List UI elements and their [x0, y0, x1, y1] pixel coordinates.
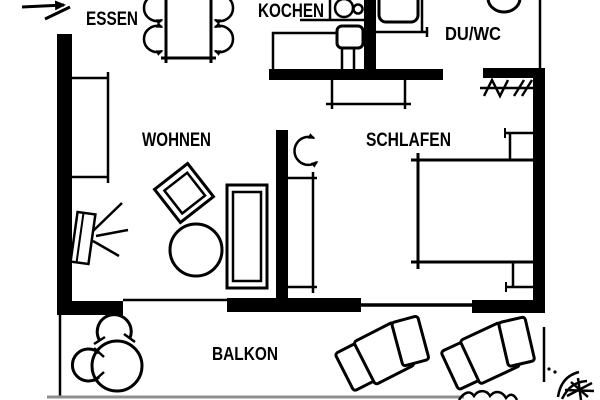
floor-plan: ESSEN KOCHEN DU/WC WOHNEN SCHLAFEN BALKO…	[0, 0, 600, 400]
bottom-left-wall	[57, 301, 123, 315]
bottom-wall-middle	[227, 298, 361, 312]
coffee-table	[170, 224, 222, 276]
tv-ray	[93, 203, 122, 231]
sofa	[227, 185, 267, 288]
label-kochen: KOCHEN	[258, 1, 324, 22]
entrance-arrow	[22, 5, 70, 19]
label-schlafen: SCHLAFEN	[366, 130, 451, 151]
bottom-wall-right	[472, 300, 545, 313]
dining-chair	[215, 26, 233, 52]
burner-small	[354, 5, 363, 14]
entrance-arrow-shaft	[22, 5, 64, 7]
nightstand-top	[505, 128, 533, 160]
balcony	[72, 311, 594, 400]
wardrobe	[288, 172, 317, 293]
living-room	[71, 164, 267, 288]
label-duwc: DU/WC	[445, 24, 501, 44]
living-bedroom-wall	[276, 130, 288, 302]
hallway	[326, 80, 534, 109]
tv-ray	[93, 241, 119, 256]
tv-with-rays	[71, 203, 128, 264]
label-wohnen: WOHNEN	[142, 130, 211, 151]
plant-scribble-bottom	[459, 391, 517, 400]
sun-lounger-right	[440, 312, 543, 395]
nightstand-bottom	[506, 262, 533, 292]
hall-wall-left	[269, 69, 443, 80]
burner-large	[335, 0, 353, 17]
dining-chair	[144, 26, 162, 52]
double-bed	[411, 153, 533, 269]
kitchen-bath-divider-wall	[364, 0, 376, 75]
dining-chair	[215, 0, 233, 21]
dining-chairs	[144, 0, 233, 52]
exterior-and-interior-walls	[57, 0, 545, 315]
kitchen-counter	[273, 33, 336, 70]
stove-hob	[335, 0, 363, 17]
label-balkon: BALKON	[212, 344, 278, 364]
balcony-table	[92, 341, 142, 391]
kitchen-sink-unit	[337, 26, 363, 70]
entrance-arrow-stroke	[45, 7, 70, 19]
door-swing-arrow	[295, 137, 317, 165]
coat-rack-hatching	[480, 80, 534, 96]
right-exterior-wall	[533, 68, 545, 313]
plant-scribble	[547, 367, 594, 400]
shower-tray	[379, 0, 418, 22]
sideboard	[72, 72, 108, 183]
left-exterior-wall	[57, 34, 72, 315]
dining-table	[161, 0, 216, 63]
sun-lounger-left	[334, 311, 437, 396]
wc-toilet	[488, 0, 520, 12]
armchair	[155, 164, 214, 223]
hall-closet	[326, 80, 411, 109]
balcony-chair-top	[94, 315, 135, 344]
dining-chair	[144, 0, 162, 21]
bedroom	[288, 128, 533, 293]
tv-ray	[96, 230, 128, 236]
label-essen: ESSEN	[86, 9, 138, 30]
